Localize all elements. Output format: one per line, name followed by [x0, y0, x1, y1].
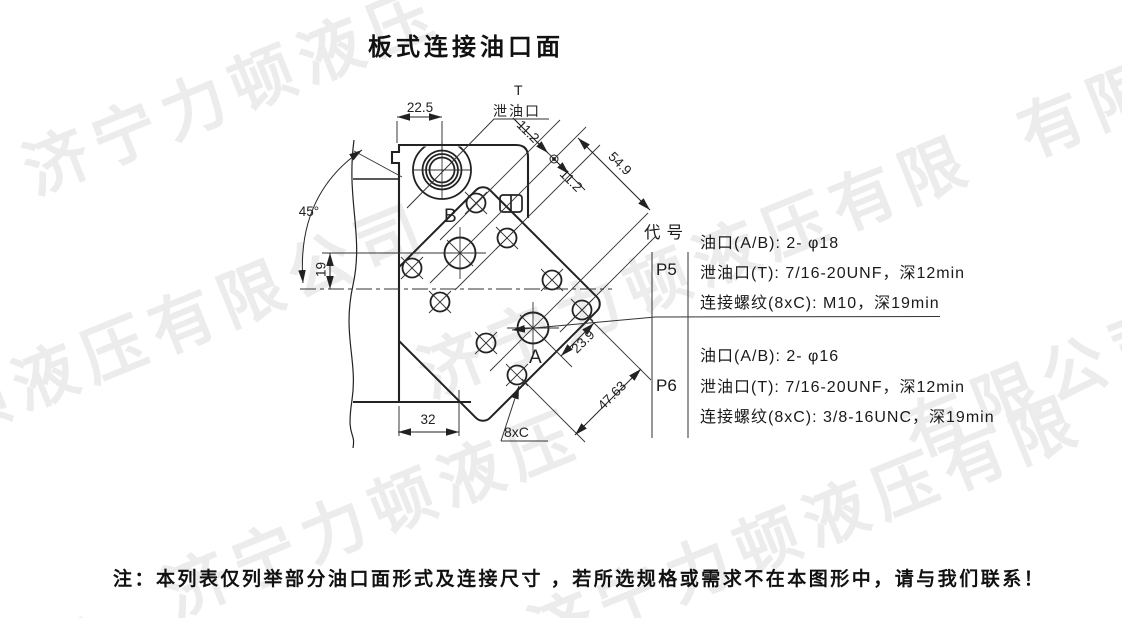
table-header-code: 代号	[644, 219, 689, 243]
port-t-label: T	[514, 82, 523, 98]
code-p6: P6	[656, 376, 677, 396]
page: 济宁力顿液压 顿液压有限公司 济宁力顿液压有限 有限公司 济宁力顿液压 济宁力顿…	[0, 0, 1122, 618]
dim-side-height: 19	[314, 251, 329, 289]
dim-angle: 45°	[290, 204, 328, 219]
footer-note: 注：本列表仅列举部分油口面形式及连接尺寸 ，若所选规格或需求不在本图形中，请与我…	[113, 564, 1045, 591]
p6-spec-drain: 泄油口(T): 7/16-20UNF，深12min	[700, 373, 965, 397]
technical-drawing	[0, 0, 1122, 618]
p6-spec-ports: 油口(A/B): 2- φ16	[700, 342, 839, 366]
port-centerlines	[434, 227, 559, 354]
p5-spec-drain: 泄油口(T): 7/16-20UNF，深12min	[700, 259, 965, 283]
port-b-label: B	[444, 206, 457, 228]
dim-bottom-width: 32	[406, 412, 450, 427]
bolt-holes-label: 8xC	[504, 424, 529, 440]
code-p5: P5	[656, 260, 677, 280]
p5-spec-thread: 连接螺纹(8xC): M10，深19min	[700, 289, 940, 313]
dim-top-width: 22.5	[397, 100, 443, 115]
p5-spec-ports: 油口(A/B): 2- φ18	[700, 229, 839, 253]
page-title: 板式连接油口面	[368, 27, 564, 62]
port-a-label: A	[529, 347, 542, 369]
p6-spec-thread: 连接螺纹(8xC): 3/8-16UNC，深19min	[700, 403, 995, 427]
